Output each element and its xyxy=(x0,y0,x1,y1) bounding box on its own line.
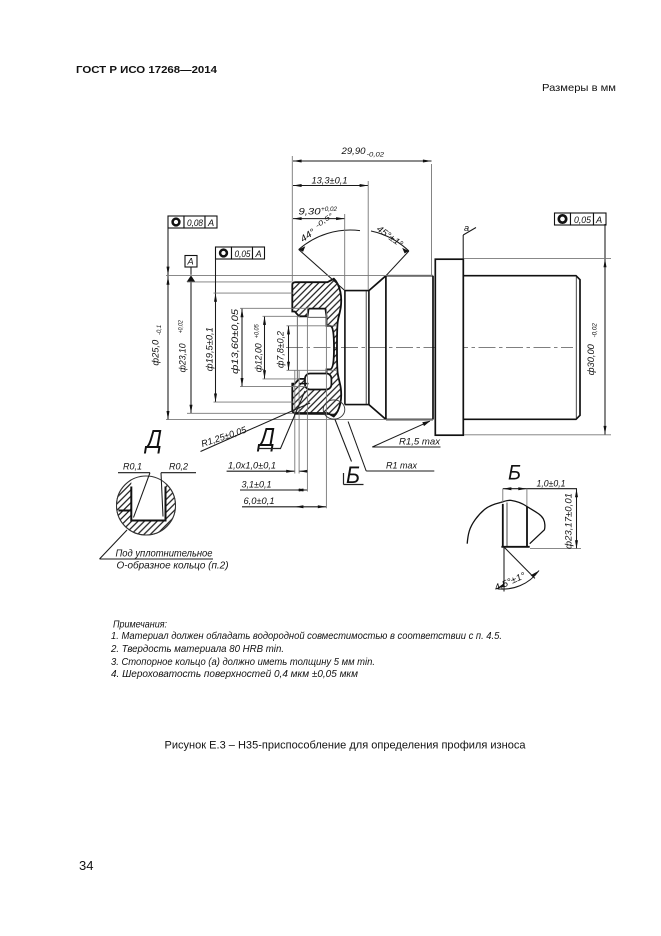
svg-text:R1 max: R1 max xyxy=(386,461,417,471)
svg-text:Рисунок Е.3 – Н35-приспособлен: Рисунок Е.3 – Н35-приспособление для опр… xyxy=(165,740,527,752)
svg-text:1,0±0,1: 1,0±0,1 xyxy=(537,479,566,489)
svg-text:Размеры в мм: Размеры в мм xyxy=(542,82,616,94)
svg-text:1. Материал должен обладать во: 1. Материал должен обладать водородной с… xyxy=(111,630,502,642)
svg-text:О-образное кольцо (п.2): О-образное кольцо (п.2) xyxy=(117,560,229,572)
svg-text:a: a xyxy=(464,223,469,233)
svg-text:13,3±0,1: 13,3±0,1 xyxy=(312,176,348,186)
svg-text:A: A xyxy=(255,249,262,259)
svg-text:ф30,00: ф30,00 xyxy=(586,343,596,375)
svg-text:-0,02: -0,02 xyxy=(367,152,385,159)
svg-text:Д: Д xyxy=(143,424,162,454)
svg-text:9,30: 9,30 xyxy=(299,207,322,217)
svg-text:Б: Б xyxy=(508,462,521,485)
svg-text:+0,02: +0,02 xyxy=(178,320,185,333)
svg-text:+0,05: +0,05 xyxy=(254,324,261,338)
svg-text:1,0x1,0±0,1: 1,0x1,0±0,1 xyxy=(228,461,276,471)
svg-text:4. Шероховатость поверхносте: 4. Шероховатость поверхностей 0,4 мкм ±0… xyxy=(111,669,358,680)
svg-text:R1,5 max: R1,5 max xyxy=(399,437,440,447)
svg-text:+0,02: +0,02 xyxy=(321,206,337,213)
svg-text:Д: Д xyxy=(256,422,275,452)
svg-text:6,0±0,1: 6,0±0,1 xyxy=(244,496,275,506)
svg-text:3. Стопорное кольцо (а) должно: 3. Стопорное кольцо (а) должно иметь тол… xyxy=(111,657,375,668)
svg-text:R0,2: R0,2 xyxy=(169,462,188,472)
svg-text:-0,1: -0,1 xyxy=(156,325,163,335)
svg-text:A: A xyxy=(595,215,602,225)
svg-text:ГОСТ Р ИСО 17268—2014: ГОСТ Р ИСО 17268—2014 xyxy=(76,64,217,76)
svg-text:3,1±0,1: 3,1±0,1 xyxy=(242,479,272,489)
svg-text:ф23,17±0,01: ф23,17±0,01 xyxy=(564,493,574,549)
svg-text:Примечания:: Примечания: xyxy=(113,620,167,631)
svg-text:0,05: 0,05 xyxy=(574,215,592,225)
svg-text:R0,1: R0,1 xyxy=(123,462,142,472)
svg-text:A: A xyxy=(207,218,214,228)
svg-text:34: 34 xyxy=(79,858,93,873)
svg-text:ф19,5±0,1: ф19,5±0,1 xyxy=(204,327,214,371)
svg-text:ф7,8±0,2: ф7,8±0,2 xyxy=(276,331,286,368)
svg-text:ф13,60±0,05: ф13,60±0,05 xyxy=(230,308,240,374)
svg-text:Под уплотнительное: Под уплотнительное xyxy=(116,549,213,560)
svg-text:A: A xyxy=(187,257,194,267)
svg-text:29,90: 29,90 xyxy=(340,146,366,156)
svg-text:ф23,10: ф23,10 xyxy=(178,343,188,373)
svg-text:0,08: 0,08 xyxy=(187,218,204,228)
svg-text:-0,02: -0,02 xyxy=(591,323,598,338)
svg-text:0,05: 0,05 xyxy=(235,249,252,259)
svg-text:2. Твердость материала 80 HRB: 2. Твердость материала 80 HRB min. xyxy=(110,644,284,655)
svg-text:ф25,0: ф25,0 xyxy=(150,339,160,366)
svg-text:ф12,00: ф12,00 xyxy=(254,342,264,372)
